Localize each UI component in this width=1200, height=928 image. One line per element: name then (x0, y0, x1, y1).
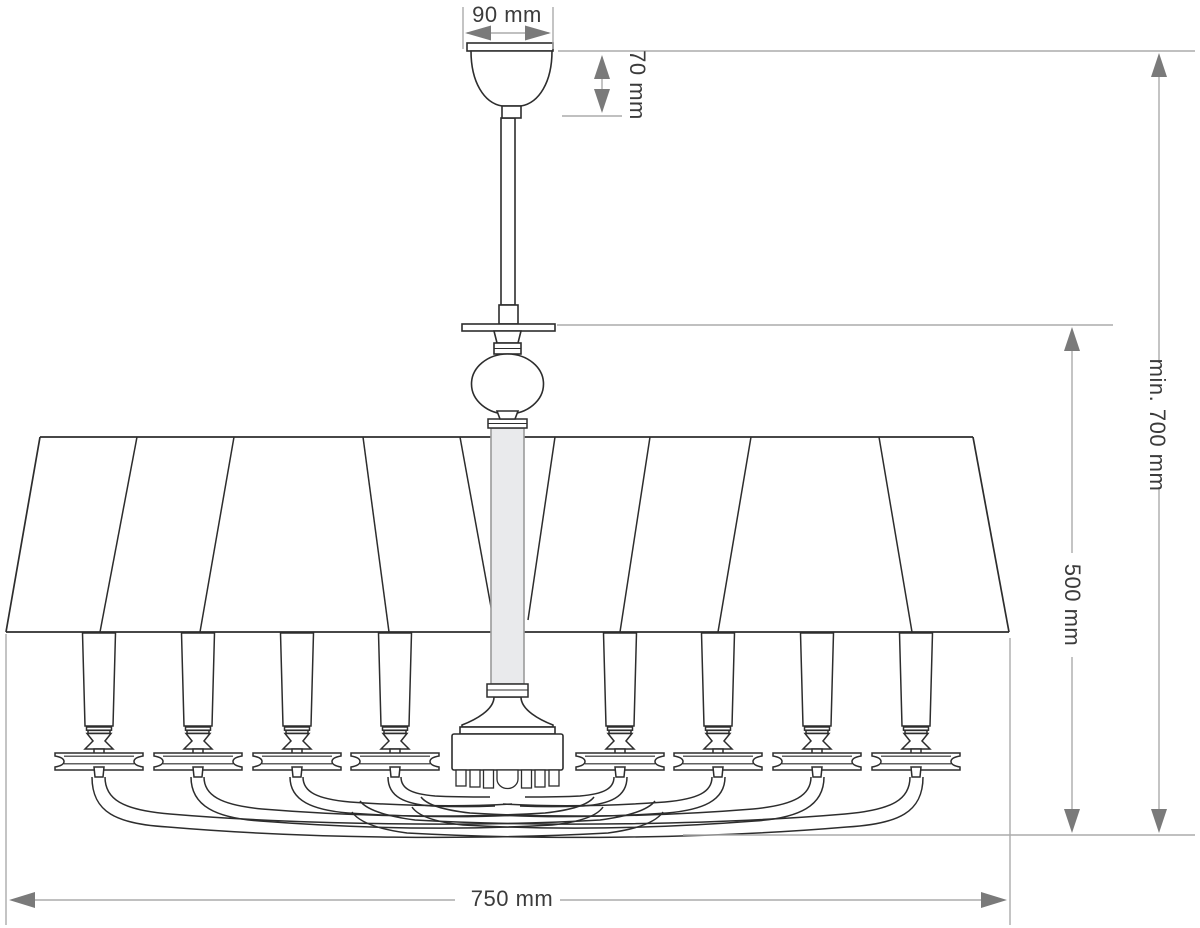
candles-right (576, 633, 960, 777)
suspension-stem (462, 118, 555, 419)
mounting-disc (462, 324, 555, 331)
arrow-down (594, 89, 610, 113)
arrow-down (1064, 809, 1080, 833)
ceiling-canopy (467, 43, 553, 118)
hub-body (452, 734, 563, 770)
canopy-dome (471, 51, 552, 106)
ball-cup (497, 411, 518, 419)
arrow-up (594, 55, 610, 79)
dim-label-canopy-height: 70 mm (624, 50, 650, 120)
dim-label-min-drop: min. 700 mm (1144, 359, 1170, 492)
stem-ball (472, 354, 544, 414)
arrow-up (1151, 53, 1167, 77)
hanging-rod (501, 118, 515, 305)
hub-plate (460, 727, 555, 734)
rod-coupling (499, 305, 518, 324)
central-hub (452, 697, 563, 789)
stem-funnel (494, 331, 521, 343)
dim-label-body-height: 500 mm (1059, 564, 1085, 646)
chandelier-drawing (0, 0, 1200, 928)
canopy-neck (502, 106, 521, 118)
dim-label-canopy-width: 90 mm (472, 2, 542, 28)
central-column (487, 419, 528, 697)
hub-bell (462, 697, 553, 727)
arrow-right (981, 892, 1007, 908)
technical-drawing-canvas: 90 mm 70 mm min. 700 mm 500 mm 750 mm (0, 0, 1200, 928)
arrow-up (1064, 327, 1080, 351)
dim-label-diameter: 750 mm (471, 886, 553, 912)
arrow-left (9, 892, 35, 908)
canopy-plate (467, 43, 553, 51)
arrow-down (1151, 809, 1167, 833)
hub-arm-sockets (456, 770, 559, 789)
candles-left (55, 633, 439, 777)
